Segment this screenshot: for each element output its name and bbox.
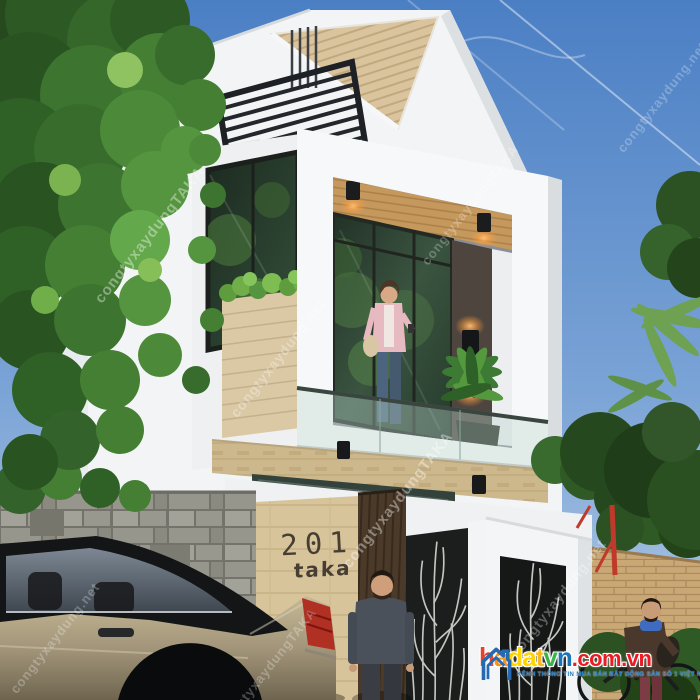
- balcony-frame: [297, 128, 562, 472]
- house-name: taka: [294, 557, 374, 581]
- house-outline-icon: [479, 644, 515, 680]
- logo-letter: n: [557, 642, 572, 672]
- house-number: 201: [280, 527, 373, 561]
- scene-render: [0, 0, 700, 700]
- architectural-render: congtyxaydungTAKA congtyxaydung.net cong…: [0, 0, 700, 700]
- logo-letter: v: [543, 642, 556, 672]
- logo-letter: a: [522, 642, 535, 672]
- logo-domain: .com.vn: [572, 646, 652, 671]
- house-number-sign: 201 taka: [280, 527, 374, 582]
- site-logo: hadatvn.com.vn KÊNH THÔNG TIN MUA BÁN BẤ…: [479, 642, 700, 678]
- gate-left: [406, 528, 468, 700]
- logo-tagline: KÊNH THÔNG TIN MUA BÁN BẤT ĐỘNG SẢN SỐ 1…: [517, 672, 700, 678]
